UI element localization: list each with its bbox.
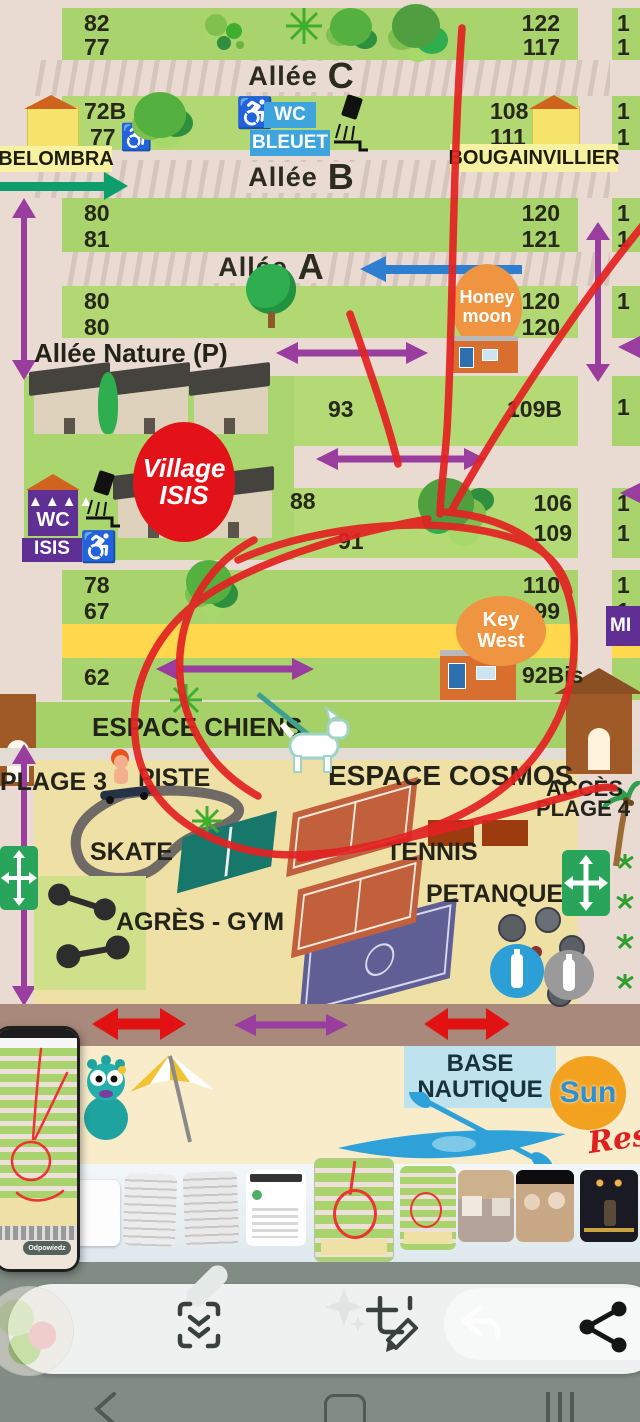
wc-bleuet-sign: WC — [264, 102, 316, 128]
purple-horizontal-arrow — [156, 656, 314, 682]
pitch-number: 106 — [512, 492, 572, 515]
pitch-number: 67 — [84, 600, 110, 623]
sector-label-belombra: BELOMBRA — [0, 146, 112, 172]
alley-letter: B — [324, 162, 358, 193]
espace-cosmos-label: ESPACE COSMOS — [328, 762, 573, 790]
ghost-sparkle-icon — [322, 1286, 366, 1334]
purple-horizontal-arrow — [276, 340, 428, 366]
pitch-number: 108 — [490, 100, 528, 123]
screenshot-root: 1 1 1 1 1 1 1 1 1 1 1 1 82 77 122 117 Al… — [0, 0, 640, 1422]
mascot-icon — [78, 1054, 134, 1158]
preview-red-annotation — [0, 1043, 77, 1243]
pitch-number: 80 — [84, 202, 110, 225]
tennis-label: TENNIS — [386, 840, 478, 865]
pitch-number: 121 — [500, 228, 560, 251]
edge-number: 1 — [617, 574, 630, 597]
bush-icon — [205, 14, 227, 36]
sector-text: BELOMBRA — [0, 148, 114, 171]
pitch-number: 77 — [84, 36, 110, 59]
pitch-number: 93 — [328, 398, 354, 421]
wc-label: ISIS — [34, 538, 70, 559]
pitch-number: 122 — [500, 12, 560, 35]
pitch-number: 110 — [500, 574, 560, 597]
nav-back-icon[interactable] — [92, 1392, 118, 1422]
plage3-label: PLAGE 3 — [0, 770, 107, 795]
purple-vertical-arrow — [582, 222, 614, 382]
filmstrip-thumb-receipt[interactable] — [183, 1171, 240, 1247]
wc-label: WC — [28, 510, 78, 530]
pitch-number: 109B — [502, 398, 562, 421]
poi-text: Key — [483, 610, 520, 631]
alley-letter: C — [324, 61, 358, 92]
sector-text: MI — [610, 615, 631, 637]
reply-arrow-icon — [458, 1302, 504, 1344]
brown-block — [482, 820, 528, 846]
nav-home-icon[interactable] — [324, 1394, 366, 1422]
filmstrip-thumb-receipt[interactable] — [74, 1180, 120, 1246]
red-double-arrow — [424, 1008, 510, 1040]
edge-number: 1 — [617, 522, 630, 545]
cypress-tree-icon — [98, 372, 118, 434]
sector-label-bougainvillier: BOUGAINVILLIER — [450, 144, 618, 172]
shower-icon — [330, 94, 370, 152]
screenshot-preview-thumbnail[interactable]: Odpowiedz — [0, 1026, 80, 1272]
preview-statusbar — [0, 1029, 77, 1038]
honeymoon-cabin-icon — [452, 336, 518, 373]
bush-icon — [330, 8, 372, 46]
pitch-number: 62 — [84, 666, 110, 689]
recycle-plastic-icon — [490, 944, 544, 998]
filmstrip-thumb-chat[interactable] — [246, 1170, 306, 1246]
wc-isis-building: ▲▲▲▲ WC — [28, 490, 78, 536]
preview-reply-button[interactable]: Odpowiedz — [23, 1241, 71, 1255]
tree-icon — [418, 478, 474, 530]
preview-reply-label: Odpowiedz — [28, 1245, 65, 1252]
tree-icon — [392, 4, 440, 48]
purple-arrow-head — [620, 482, 640, 504]
beach-umbrella-icon — [124, 1038, 222, 1148]
alley-word: Allée — [242, 61, 324, 92]
skater-icon — [94, 746, 170, 812]
skate-label: SKATE — [90, 840, 173, 865]
poi-text: moon — [463, 307, 512, 326]
dumbbells-icon — [42, 878, 152, 988]
sign-text: BASE — [447, 1051, 514, 1077]
pitch-number: 117 — [500, 36, 560, 59]
tree-icon — [186, 560, 232, 604]
pitch-number: 120 — [500, 202, 560, 225]
alley-letter: A — [294, 252, 328, 283]
plage4-label: PLAGE 4 — [536, 798, 630, 820]
alley-nature-label: Allée Nature (P) — [34, 340, 228, 366]
keywest-poi: Key West — [456, 596, 546, 666]
wc-label: BLEUET — [252, 132, 328, 154]
poi-text: Village — [143, 455, 226, 482]
smart-select-icon[interactable] — [176, 1300, 222, 1352]
dog-icon — [248, 688, 364, 786]
sector-text: BOUGAINVILLIER — [448, 147, 619, 170]
share-icon[interactable] — [576, 1298, 630, 1356]
edge-number: 1 — [617, 100, 630, 123]
pitch-number: 72B — [84, 100, 126, 123]
purple-double-arrow — [234, 1012, 348, 1038]
tree-icon — [134, 92, 186, 138]
edge-number: 1 — [617, 228, 630, 251]
pitch-number: 92Bis — [522, 664, 583, 687]
blue-arrow-head — [360, 256, 386, 282]
purple-arrow-head — [618, 336, 640, 358]
filmstrip-thumb-map[interactable] — [400, 1166, 456, 1250]
nav-recents-icon[interactable] — [546, 1392, 580, 1422]
wc-isis-roof — [26, 474, 80, 490]
filmstrip-thumb-receipt[interactable] — [123, 1173, 177, 1247]
tree-icon — [244, 264, 298, 328]
starburst-plant-icon — [190, 804, 224, 838]
pitch-number: 109 — [512, 522, 572, 545]
village-house-icon — [34, 382, 108, 434]
preview-screen: Odpowiedz — [0, 1029, 77, 1269]
alley-b-label: Allée B — [170, 162, 430, 193]
filmstrip-thumb-night[interactable] — [580, 1170, 638, 1242]
mimosa-sign-partial: MI — [606, 606, 640, 646]
wheelchair-icon: ♿ — [80, 530, 117, 565]
shower-icon — [82, 470, 122, 528]
filmstrip-thumb-map-selected[interactable] — [314, 1158, 394, 1262]
pitch-number: 82 — [84, 12, 110, 35]
edge-number: 1 — [617, 396, 630, 419]
recycle-glass-icon — [544, 950, 594, 1000]
pitch-number: 80 — [84, 290, 110, 313]
pitch-number: 78 — [84, 574, 110, 597]
wc-label: WC — [274, 104, 306, 126]
edge-number: 1 — [617, 290, 630, 313]
meeting-point-sign — [0, 846, 38, 910]
poi-text: ISIS — [159, 482, 208, 509]
village-isis-badge: Village ISIS — [133, 422, 235, 542]
green-arrow-head — [104, 172, 128, 200]
poi-text: Honey — [459, 288, 514, 307]
petanque-label: PETANQUE — [426, 882, 563, 907]
purple-horizontal-arrow — [316, 446, 486, 472]
filmstrip-thumb-couple[interactable] — [516, 1170, 574, 1242]
wc-bleuet-sign: BLEUET — [250, 130, 330, 156]
green-arrow — [0, 182, 104, 191]
poi-text: West — [477, 631, 524, 652]
alley-word: Allée — [242, 162, 324, 193]
plants-icon — [610, 852, 640, 1002]
pitch-number: 80 — [84, 316, 110, 339]
starburst-plant-icon — [284, 6, 324, 46]
wc-isis-banner: ISIS — [22, 538, 82, 562]
edge-number: 1 — [617, 202, 630, 225]
red-double-arrow — [92, 1008, 186, 1040]
village-house-icon — [194, 382, 268, 434]
restaurant-script-text: Res — [586, 1118, 640, 1161]
pitch-number: 91 — [338, 530, 364, 553]
edge-number: 1 — [617, 36, 630, 59]
starburst-plant-icon — [168, 682, 204, 718]
pitch-number: 88 — [290, 490, 316, 513]
filmstrip-thumb-street[interactable] — [458, 1170, 514, 1242]
edge-number: 1 — [617, 12, 630, 35]
pitch-number: 81 — [84, 228, 110, 251]
crop-edit-icon[interactable] — [366, 1296, 422, 1356]
alley-c-label: Allée C — [170, 61, 430, 92]
